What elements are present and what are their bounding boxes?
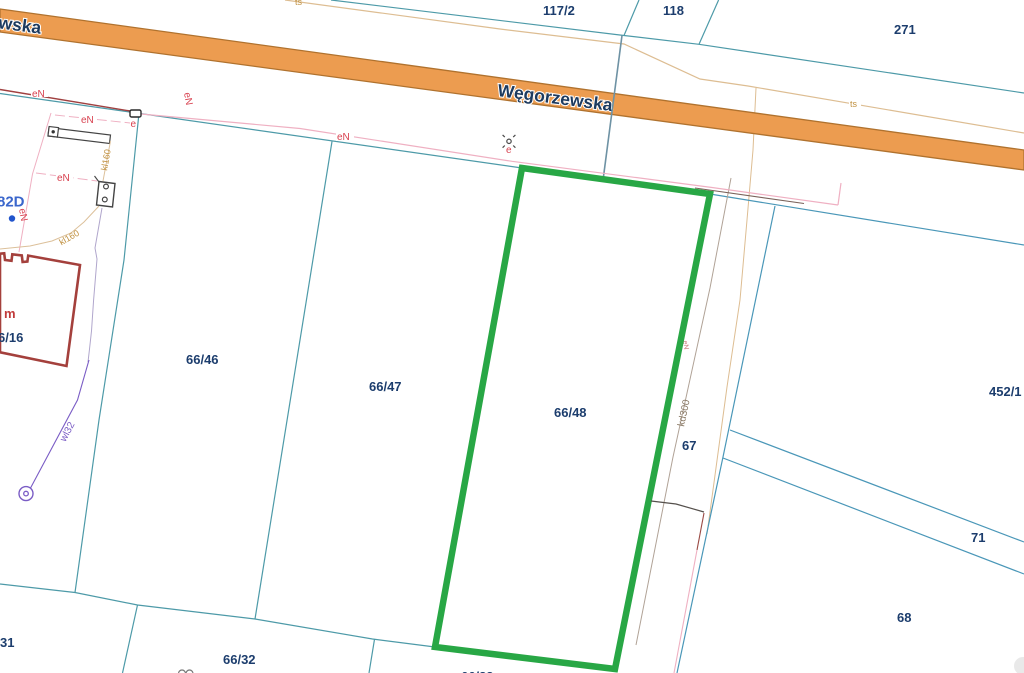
svg-text:117/2: 117/2 — [543, 3, 575, 18]
svg-text:82D: 82D — [0, 194, 25, 211]
svg-text:118: 118 — [663, 3, 684, 18]
svg-text:ts: ts — [295, 0, 303, 7]
svg-text:452/1: 452/1 — [989, 384, 1022, 399]
svg-text:eN: eN — [81, 115, 94, 126]
svg-text:eN: eN — [57, 173, 70, 184]
svg-text:67: 67 — [682, 438, 696, 453]
svg-text:66/47: 66/47 — [369, 379, 402, 394]
svg-text:eN: eN — [181, 92, 194, 107]
svg-text:6/16: 6/16 — [0, 330, 23, 345]
svg-text:eN: eN — [32, 89, 45, 100]
svg-text:m: m — [4, 306, 16, 321]
svg-text:66/48: 66/48 — [554, 405, 587, 420]
svg-text:ts: ts — [850, 99, 858, 109]
svg-text:e: e — [506, 145, 512, 156]
svg-text:66/46: 66/46 — [186, 352, 219, 367]
svg-text:31: 31 — [0, 635, 14, 650]
svg-text:71: 71 — [971, 530, 985, 545]
svg-text:e: e — [131, 119, 137, 130]
svg-text:68: 68 — [897, 610, 911, 625]
svg-text:eN: eN — [337, 132, 350, 143]
svg-text:66/33: 66/33 — [461, 669, 494, 673]
svg-text:271: 271 — [894, 22, 916, 37]
svg-text:66/32: 66/32 — [223, 652, 256, 667]
